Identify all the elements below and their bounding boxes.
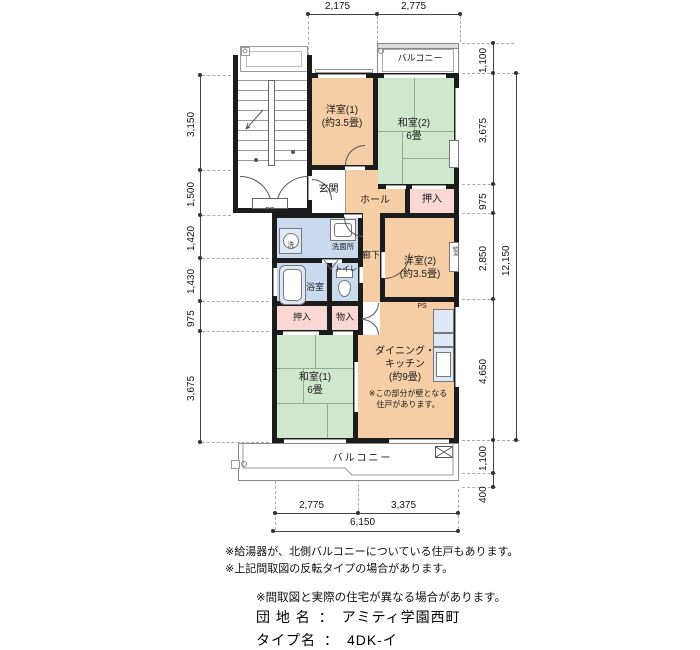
genkan-label: 玄関 xyxy=(312,183,345,196)
site-name-value: アミティ学園西町 xyxy=(342,609,461,625)
tatami-line xyxy=(315,335,316,368)
wall xyxy=(380,213,459,218)
site-name-label: 団 地 名 xyxy=(256,609,311,625)
door-opening xyxy=(345,166,365,170)
dim-left-5: 975 xyxy=(186,310,197,327)
site-name-separator: ： xyxy=(319,609,334,625)
window xyxy=(389,439,449,443)
dim-line-bottom-total xyxy=(273,531,458,532)
window xyxy=(318,74,366,78)
wall xyxy=(233,55,238,213)
tatami-line xyxy=(277,403,353,404)
sliding-door xyxy=(412,185,446,189)
washitsu2-label: 和室(2)6畳 xyxy=(382,117,446,143)
dim-left-6: 3,675 xyxy=(186,376,197,401)
toilet-label: トイレ xyxy=(332,264,360,274)
balcony-top-label: バルコニー xyxy=(385,53,455,65)
window xyxy=(284,439,346,443)
dim-right-5: 4,650 xyxy=(478,359,489,384)
washitsu1-label: 和室(1)6畳 xyxy=(283,371,347,397)
wall xyxy=(272,213,277,443)
dim-left-4: 1,430 xyxy=(186,269,197,294)
dim-right-6: 1,100 xyxy=(478,446,489,471)
dim-left-1: 3,150 xyxy=(186,112,197,137)
dim-right-1: 1,100 xyxy=(478,48,489,73)
dk-note: ※この部分が壁となる住戸があります。 xyxy=(362,389,454,411)
dim-right-2: 3,675 xyxy=(478,118,489,143)
dim-top-2: 2,775 xyxy=(401,1,426,12)
sen-label: 洗 xyxy=(288,242,295,249)
dim-left-2: 1,500 xyxy=(186,182,197,207)
type-name-separator: ： xyxy=(324,632,339,648)
plan-area: PS バルコニー バルコニー 洗 給湯 洋室(1)(約3.5畳) 和室(2)6畳… xyxy=(0,0,700,650)
rouka-label: 廊下 xyxy=(353,250,389,262)
tatami-line xyxy=(402,158,454,159)
dim-line-right-total xyxy=(516,73,517,440)
type-name-row: タイプ名：4DK-イ xyxy=(256,630,398,650)
note-2: ※上記間取図の反転タイプの場合があります。 xyxy=(225,560,453,576)
ps-stair-label: PS xyxy=(265,207,274,214)
washing-machine-drum: 洗 xyxy=(283,233,299,249)
oshiire-lower-label: 押入 xyxy=(282,312,322,324)
dim-right-7: 400 xyxy=(478,486,489,503)
wall xyxy=(272,258,363,263)
hatch-icon xyxy=(435,446,453,458)
balcony-bottom-step xyxy=(231,460,240,469)
sliding-door xyxy=(283,331,319,335)
dk-door-arc xyxy=(362,319,379,335)
dim-right-total: 12,150 xyxy=(501,245,512,276)
ps-dk-label: PS xyxy=(410,302,434,311)
sliding-door xyxy=(354,362,358,412)
site-name-row: 団 地 名：アミティ学園西町 xyxy=(256,607,461,627)
dim-bottom-2: 3,375 xyxy=(391,500,416,511)
dim-bottom-1: 2,775 xyxy=(299,500,324,511)
sliding-door xyxy=(333,331,353,335)
window xyxy=(273,268,277,296)
dim-top-1: 2,175 xyxy=(325,1,350,12)
oshiire-upper-label: 押入 xyxy=(410,193,454,206)
ps-box-stair: PS xyxy=(252,198,288,209)
dim-right-3: 975 xyxy=(478,193,489,210)
tatami-line xyxy=(327,403,328,438)
dim-line-top xyxy=(308,14,460,15)
hall-label: ホール xyxy=(347,194,403,207)
type-name-value: 4DK-イ xyxy=(347,632,398,648)
wall-box xyxy=(449,140,459,168)
dk-door-arc xyxy=(362,303,379,319)
floor-plan-page: { "colors":{ "wall":"#1c1c1c", "peach":"… xyxy=(0,0,700,650)
window xyxy=(384,74,446,78)
dim-line-right xyxy=(493,43,494,487)
yoshitsu2-label: 洋室(2)(約3.5畳) xyxy=(388,255,452,281)
genkan-step-line xyxy=(345,170,346,213)
dim-left-3: 1,420 xyxy=(186,226,197,251)
window xyxy=(455,307,459,387)
dim-right-4: 2,850 xyxy=(478,246,489,271)
type-name-label: タイプ名 xyxy=(256,632,316,648)
dim-line-bottom xyxy=(275,513,458,514)
note-1: ※給湯器が、北側バルコニーについている住戸もあります。 xyxy=(225,543,518,559)
dim-bottom-total: 6,150 xyxy=(350,517,375,528)
monoire-label: 物入 xyxy=(330,312,360,324)
yokushitsu-label: 浴室 xyxy=(297,282,333,294)
balcony-bottom-label: バルコニー xyxy=(315,452,410,465)
kitchen-counter xyxy=(433,309,454,333)
kitchen-sink xyxy=(436,352,451,377)
dk-label: ダイニング・キッチン(約9畳) xyxy=(372,345,438,384)
sliding-door xyxy=(386,185,406,189)
door-opening xyxy=(322,259,342,263)
tatami-line xyxy=(277,368,353,369)
note-3: ※間取図と実際の住宅が異なる場合があります。 xyxy=(256,589,506,605)
stair-landing-inner xyxy=(246,51,302,67)
stair-rail xyxy=(268,80,275,166)
yoshitsu1-label: 洋室(1)(約3.5畳) xyxy=(310,104,374,130)
stair-landing-corner xyxy=(241,47,250,56)
